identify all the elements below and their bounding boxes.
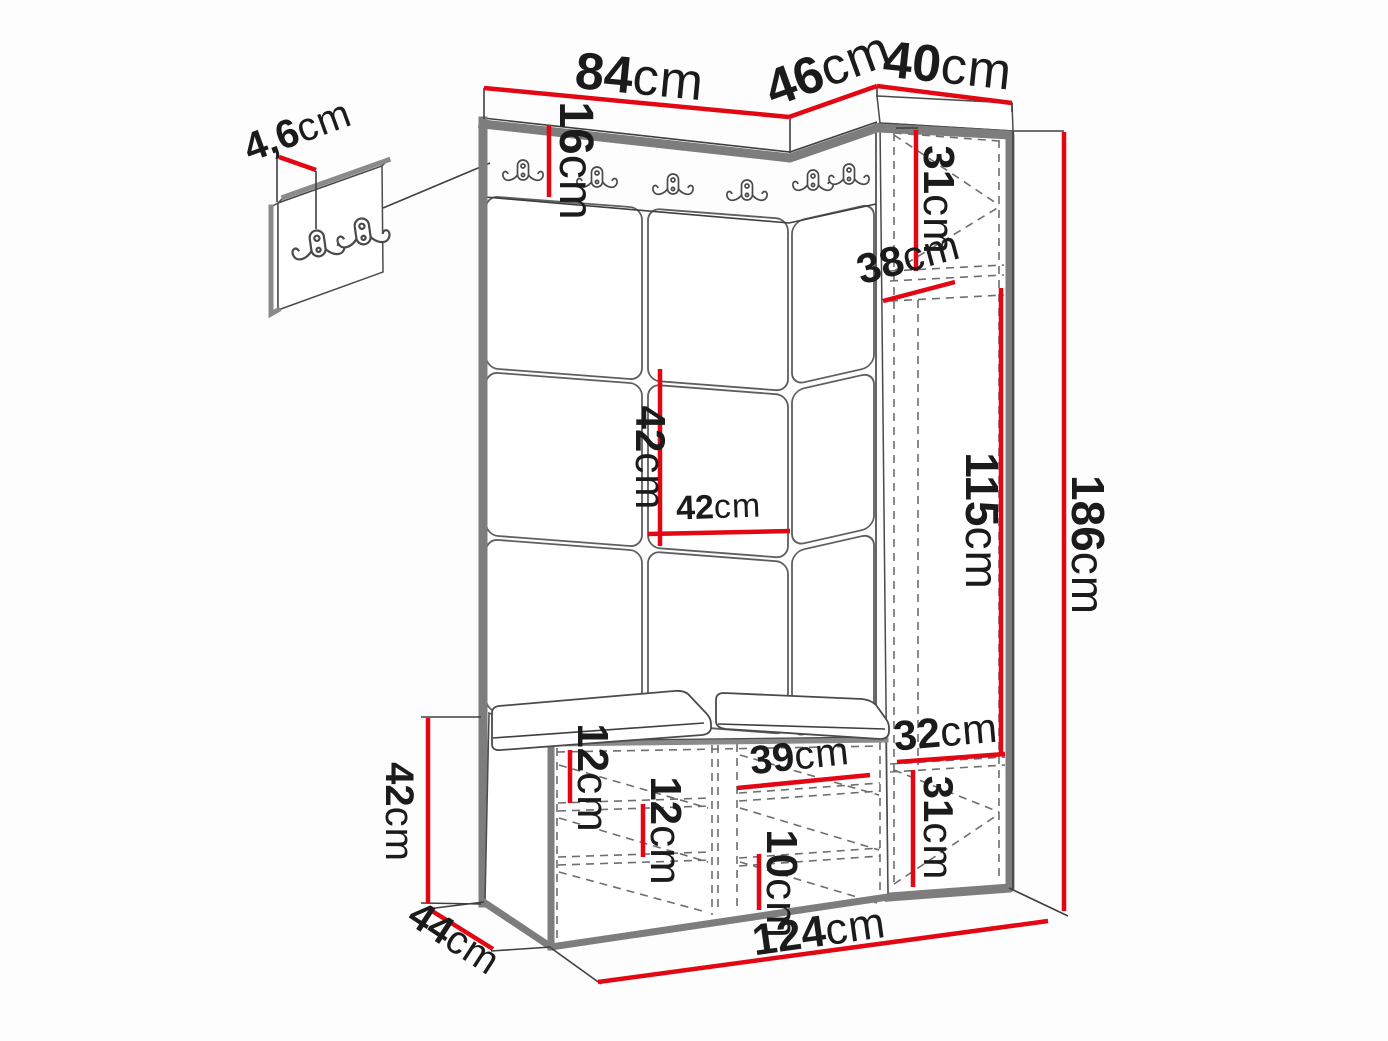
dim-label-bench-shelf-gap-top: 12cm [568,723,617,833]
upholstered-panel [486,196,642,380]
dim-line-42cm-horizontal [648,531,790,534]
inset-leader-line [383,163,490,208]
dim-label-cabinet-bottom-height: 31cm [915,776,962,881]
furniture-dimension-diagram: 84cm 46cm 40cm 4,6cm 16cm 31cm 38cm 42cm… [0,0,1388,1041]
wall-top-edge [483,124,877,158]
hook-panel-inset [271,160,490,314]
dim-label-cabinet-bottom-width: 32cm [892,704,1000,760]
diagram-canvas: 84cm 46cm 40cm 4,6cm 16cm 31cm 38cm 42cm… [0,0,1388,1041]
dim-label-panel-width: 42cm [675,487,761,528]
dim-label-rail-height: 16cm [549,101,602,220]
upholstered-panel [792,372,874,546]
dim-label-inner-height: 115cm [956,452,1008,590]
dim-label-hook-panel-depth: 4,6cm [238,91,357,170]
dim-line-4-6cm [279,157,316,170]
bench-cushion [716,693,889,739]
upholstered-panel [486,372,642,547]
upholstered-panel [792,203,874,385]
dim-label-total-height: 186cm [1062,475,1114,615]
upholstered-panel [648,208,788,391]
dim-label-panel-height: 42cm [627,406,674,511]
dim-label-bench-shelf-gap-mid: 12cm [641,776,690,886]
dim-label-bench-height: 42cm [377,762,421,862]
